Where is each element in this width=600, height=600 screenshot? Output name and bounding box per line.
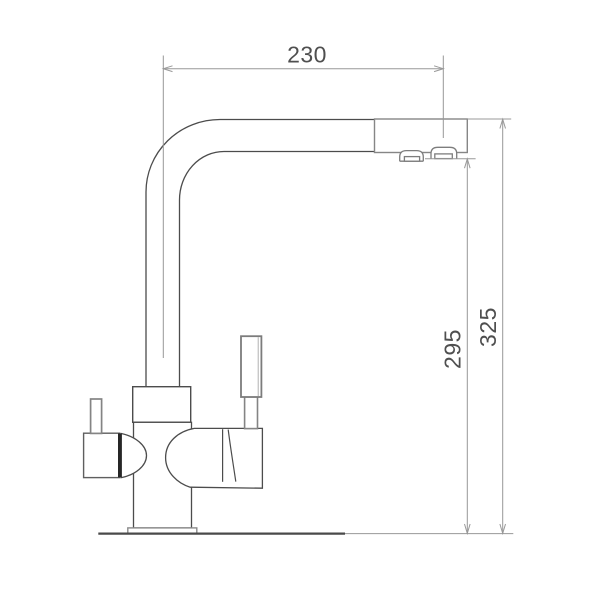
faucet-base — [98, 528, 345, 534]
left-handle-body — [84, 433, 120, 477]
drawing-page: 230 325 295 — [0, 0, 600, 600]
dimension-outlet-height: 295 — [425, 159, 476, 534]
body-collar — [133, 387, 191, 423]
left-handle-lever — [91, 399, 102, 433]
right-handle-mount — [166, 428, 263, 488]
aerator-large — [431, 147, 457, 158]
reach-label: 230 — [287, 42, 327, 68]
right-handle-stem — [245, 397, 258, 429]
faucet — [84, 119, 468, 534]
spout-inner-contour — [180, 152, 375, 388]
aerator-large-nozzle — [435, 154, 453, 159]
total-height-label: 325 — [475, 307, 501, 347]
spout-head — [375, 119, 468, 161]
aerator-small — [400, 151, 424, 162]
faucet-technical-drawing: 230 325 295 — [0, 0, 600, 600]
dimension-reach: 230 — [163, 42, 443, 359]
outlet-height-label: 295 — [439, 329, 465, 369]
dimension-total-height: 325 — [467, 119, 511, 534]
aerator-small-nozzle — [404, 157, 419, 162]
